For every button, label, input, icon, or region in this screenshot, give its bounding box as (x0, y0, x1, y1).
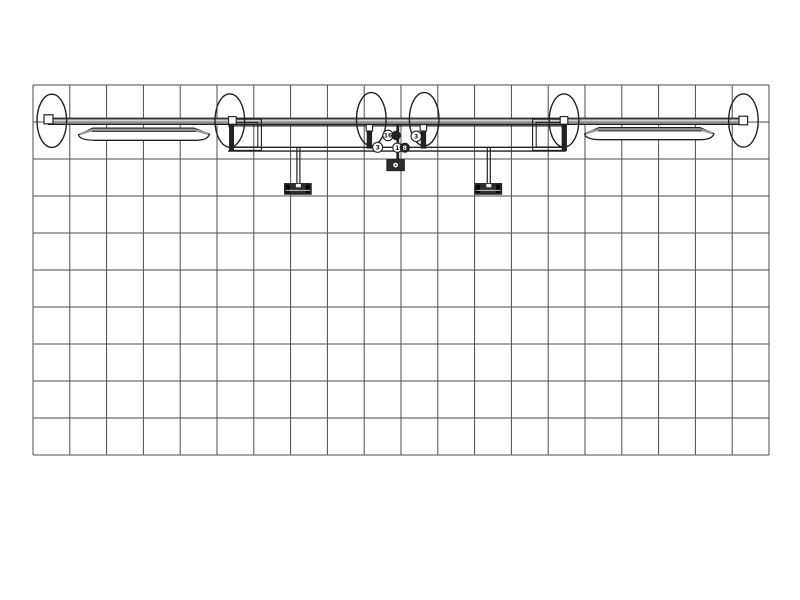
monitor-mount-right-block-b (496, 185, 500, 193)
part-balloon-1-label: 1 (395, 145, 399, 152)
backwall-mid-post-cap-left (366, 125, 372, 131)
exhibit-plan-drawing: 16 3 1 8 3 (0, 0, 800, 600)
monitor-mount-right (475, 147, 502, 194)
center-base-plate (387, 160, 404, 171)
part-balloon-16-label: 16 (384, 133, 393, 140)
monitor-mount-left-block-a (286, 185, 290, 193)
backwall-post-cap-right (560, 117, 568, 125)
backwall-post-left (229, 124, 234, 151)
monitor-mount-left-block-b (306, 185, 310, 193)
canopy-blade-left (79, 128, 210, 140)
truss-end-plug-right (739, 116, 748, 125)
part-balloon-8-label: 8 (403, 145, 407, 152)
monitor-mount-right-block-a (476, 185, 480, 193)
backwall-post-right (562, 124, 567, 151)
horizontal-truss-beam (44, 115, 748, 125)
backwall-mid-post-right (421, 131, 426, 149)
part-balloon-3-left: 3 (373, 142, 383, 152)
part-balloon-3-right-label: 3 (414, 134, 418, 141)
center-support-stem (396, 124, 399, 160)
monitor-mount-right-notch (486, 184, 491, 187)
part-balloon-filled (392, 131, 400, 139)
truss-beam-bar (49, 118, 744, 124)
canopy-blade-right (585, 128, 714, 140)
backwall-post-cap-left (229, 117, 237, 125)
monitor-mount-left (285, 147, 312, 194)
base-plate-bolt-center (395, 164, 397, 166)
monitor-mount-left-notch (296, 184, 301, 187)
part-balloon-3-right: 3 (411, 131, 421, 141)
truss-end-plug-left (44, 115, 53, 124)
part-balloon-3-left-label: 3 (375, 145, 379, 152)
backwall-mid-post-cap-right (420, 125, 426, 131)
part-balloon-8: 8 (400, 143, 409, 152)
backwall-mid-post-left (367, 131, 372, 149)
